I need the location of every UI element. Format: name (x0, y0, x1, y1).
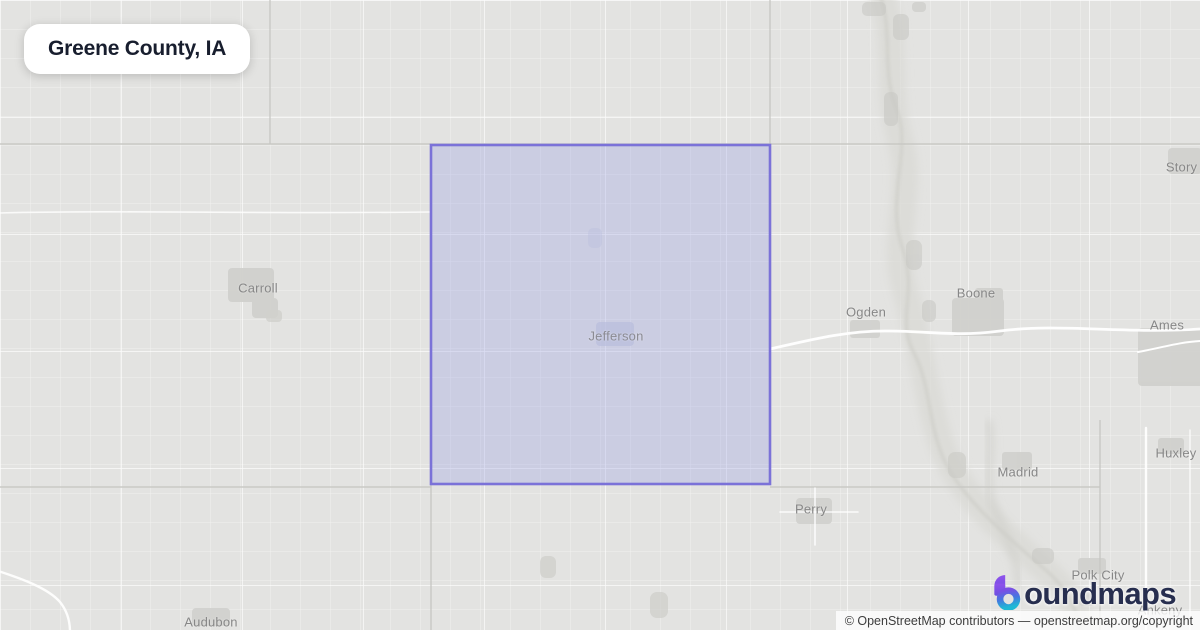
osm-attribution-text: © OpenStreetMap contributors (845, 614, 1015, 628)
title-card: Greene County, IA (24, 24, 250, 74)
page-title: Greene County, IA (48, 37, 226, 61)
map-canvas[interactable]: Carroll Jefferson Ogden Boone Ames Story… (0, 0, 1200, 630)
boundmaps-logo: oundmaps (993, 574, 1176, 609)
county-highlight[interactable] (431, 145, 770, 484)
copyright-link[interactable]: openstreetmap.org/copyright (1034, 614, 1193, 628)
boundmaps-wordmark: oundmaps (1024, 578, 1176, 609)
attribution-separator: — (1014, 614, 1033, 628)
boundmaps-b-icon (993, 574, 1023, 609)
attribution-bar: © OpenStreetMap contributors — openstree… (836, 611, 1200, 630)
basemap (0, 0, 1200, 630)
